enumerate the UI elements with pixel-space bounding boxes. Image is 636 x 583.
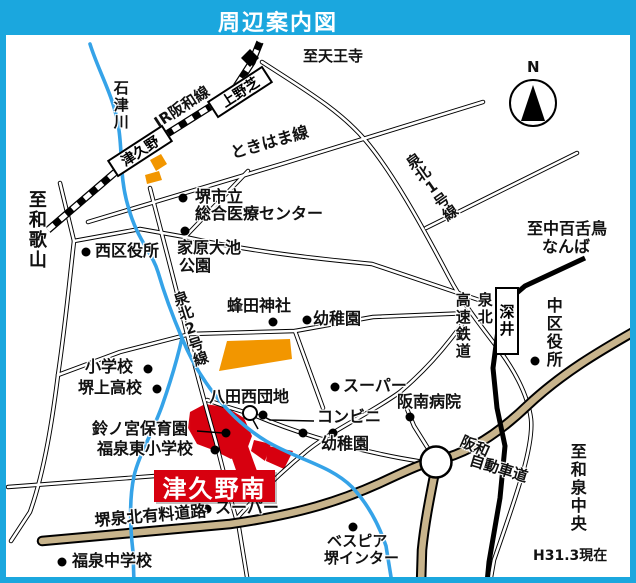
frame-left [0, 35, 6, 583]
dot-fukusen-higashi [211, 446, 220, 455]
compass-rose [510, 80, 556, 126]
dot-suzunomiya [222, 429, 231, 438]
station-box-fukai: 深井 [495, 287, 519, 355]
dot-bespia [349, 523, 358, 532]
danchi-circle [243, 406, 257, 420]
title-bar: 周辺案内図 [0, 0, 636, 35]
dot-sakai-medical [179, 194, 188, 203]
interchange-circle [421, 447, 452, 478]
dot-kindergarten-south [329, 429, 338, 438]
dot-kindergarten-north [303, 316, 312, 325]
site-box-tsukuno-minami: 津久野南 [154, 470, 275, 502]
page-title: 周辺案内図 [218, 5, 338, 37]
dot-super-south [203, 505, 212, 514]
dot-hannan-hospital [406, 413, 415, 422]
dot-sakaigami-hs [153, 385, 162, 394]
area-guide-map: 周辺案内図 N 至天王寺 至和歌山 至中百舌鳥 なんば 至和泉中央 石津川 JR… [0, 0, 636, 583]
dot-super-north [331, 383, 340, 392]
dot-fukusen-jhs [58, 558, 67, 567]
dot-hachita-shrine [269, 318, 278, 327]
site-label: 津久野南 [163, 469, 267, 504]
station-label-fukai: 深井 [497, 304, 518, 338]
dot-ebara-park [181, 227, 190, 236]
map-canvas [0, 0, 636, 583]
dot-konbini [259, 411, 268, 420]
dot-poi-center [299, 429, 308, 438]
dot-naka-ward [531, 357, 540, 366]
frame-right [630, 35, 636, 583]
dot-elementary [144, 365, 153, 374]
frame-bottom [0, 577, 636, 583]
dot-nishi-ward [82, 248, 91, 257]
